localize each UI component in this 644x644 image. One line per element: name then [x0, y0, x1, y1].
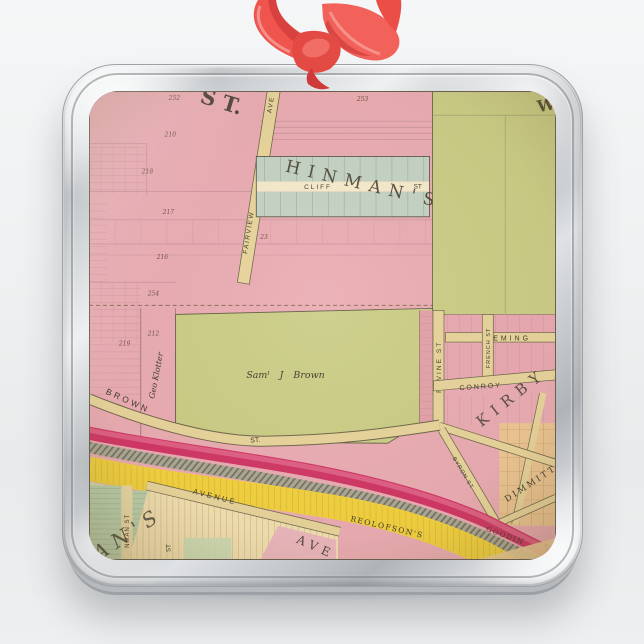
ornament-product-photo: AVE FAIRVIEW CLIFF ST HINMAN'S — [0, 0, 644, 644]
ribbon-shape — [254, 0, 401, 89]
map-window: AVE FAIRVIEW CLIFF ST HINMAN'S — [89, 91, 556, 560]
ribbon — [230, 0, 420, 96]
atlas-map: AVE FAIRVIEW CLIFF ST HINMAN'S — [89, 91, 556, 560]
ornament-frame: AVE FAIRVIEW CLIFF ST HINMAN'S — [62, 64, 583, 587]
paper-vignette — [89, 91, 556, 560]
